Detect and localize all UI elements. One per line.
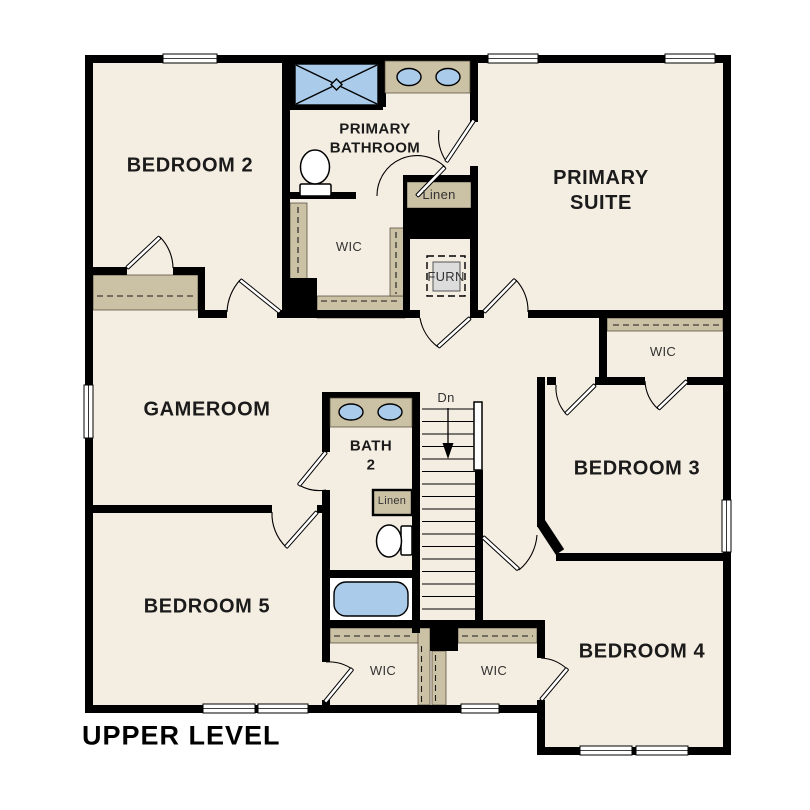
double-vanity-primary bbox=[385, 61, 470, 93]
room-label-bath-2: BATH 2 bbox=[350, 437, 392, 474]
window bbox=[580, 746, 632, 755]
floor-plan: BEDROOM 2 PRIMARY BATHROOM PRIMARY SUITE… bbox=[0, 0, 810, 810]
closet-label-furnace: FURN bbox=[427, 269, 464, 285]
toilet-bath-2 bbox=[377, 525, 413, 557]
window bbox=[665, 54, 715, 63]
room-label-bedroom-2: BEDROOM 2 bbox=[127, 154, 254, 179]
room-label-bedroom-5: BEDROOM 5 bbox=[144, 595, 271, 620]
shower-icon bbox=[290, 59, 383, 110]
double-vanity-bath-2 bbox=[330, 398, 412, 427]
room-label-primary-suite: PRIMARY SUITE bbox=[553, 166, 649, 216]
room-label-primary-bathroom: PRIMARY BATHROOM bbox=[330, 120, 420, 157]
toilet-primary bbox=[300, 150, 331, 196]
window bbox=[84, 385, 93, 438]
window bbox=[203, 704, 255, 713]
window bbox=[258, 704, 308, 713]
window bbox=[488, 54, 538, 63]
window bbox=[163, 54, 217, 63]
stairs-down-label: Dn bbox=[437, 390, 454, 406]
stair-railing bbox=[474, 402, 482, 470]
room-label-bedroom-4: BEDROOM 4 bbox=[579, 640, 706, 665]
closet-label-linen-bath-2: Linen bbox=[378, 495, 406, 509]
room-label-bedroom-3: BEDROOM 3 bbox=[574, 457, 701, 482]
closet-label-wic-bedroom-3: WIC bbox=[650, 344, 676, 360]
bathtub-icon bbox=[330, 578, 412, 620]
room-label-gameroom: GAMEROOM bbox=[143, 398, 270, 423]
closet-label-linen-primary: Linen bbox=[422, 187, 455, 203]
closet-label-wic-bedroom-4: WIC bbox=[481, 663, 507, 679]
window bbox=[722, 500, 731, 552]
window bbox=[636, 746, 688, 755]
page-title: UPPER LEVEL bbox=[82, 721, 281, 752]
closet-label-wic-bedroom-5: WIC bbox=[370, 663, 396, 679]
window bbox=[461, 704, 499, 713]
closet-label-wic-primary: WIC bbox=[336, 239, 362, 255]
